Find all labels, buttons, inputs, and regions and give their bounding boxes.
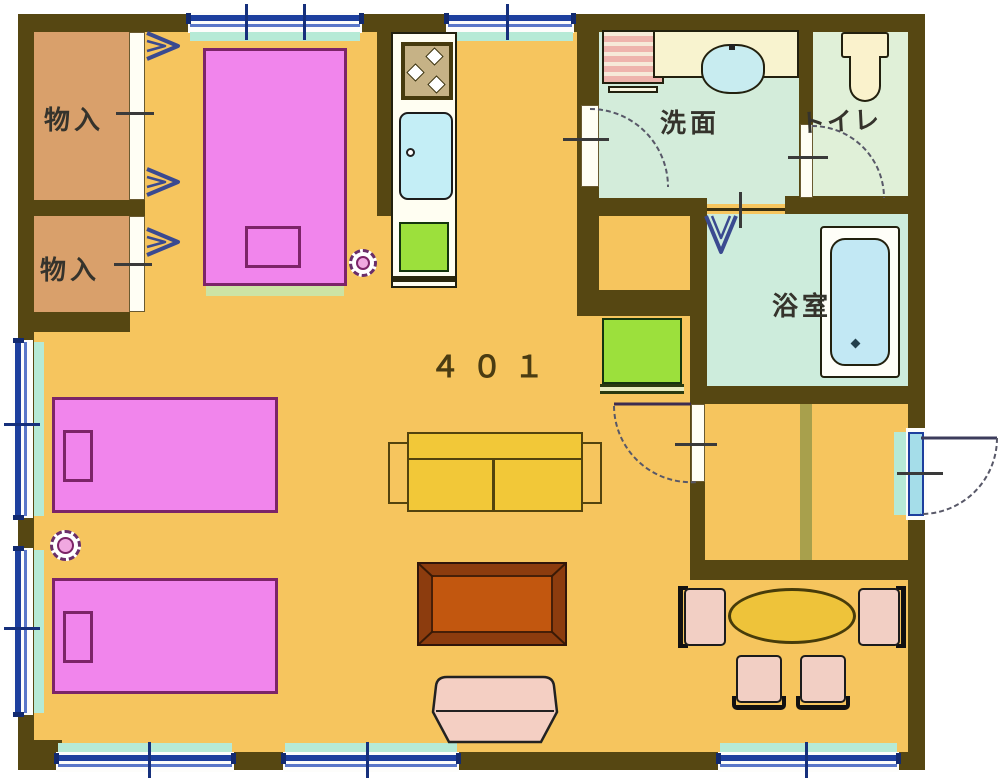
window-cap xyxy=(444,13,449,24)
window-cap xyxy=(13,712,24,717)
toilet-bowl xyxy=(849,56,881,102)
window-frame xyxy=(718,755,899,761)
sofa-seat-divider xyxy=(492,460,495,510)
window-frame xyxy=(15,548,21,715)
pillow xyxy=(63,611,93,663)
window-frame xyxy=(24,550,27,713)
window-cap xyxy=(716,753,721,764)
stool-seat xyxy=(356,256,370,270)
towel-shelf-base xyxy=(608,86,658,93)
wall-bath-toilet xyxy=(785,196,908,214)
window xyxy=(283,752,459,772)
dining-chair-back xyxy=(796,696,850,710)
genkan-step-edge xyxy=(800,404,812,560)
window-glass xyxy=(34,550,44,713)
window-tick xyxy=(4,423,40,426)
door-tick xyxy=(739,192,742,228)
window-frame xyxy=(283,755,459,761)
window-cap xyxy=(571,13,576,24)
kitchen-counter-end xyxy=(393,276,455,282)
window xyxy=(56,752,234,772)
window-frame xyxy=(15,340,21,518)
window-tick xyxy=(303,4,306,40)
door-tick xyxy=(788,156,828,159)
wall-below-storage xyxy=(18,312,130,332)
window xyxy=(12,340,33,518)
door-tick xyxy=(114,263,152,266)
wall-storage-door-post xyxy=(129,14,145,32)
window-frame xyxy=(188,15,362,21)
vanity-basin xyxy=(701,44,765,94)
sofa-armrest xyxy=(388,442,409,504)
wall-hall-top xyxy=(690,386,908,404)
window xyxy=(12,548,33,715)
window-cap xyxy=(13,546,24,551)
stool-seat xyxy=(57,537,74,554)
window-tick xyxy=(245,4,248,40)
wall-bathroom-left xyxy=(690,214,707,388)
dining-chair xyxy=(858,588,900,646)
room-label-storage-2: 物入 xyxy=(40,250,100,287)
pillow xyxy=(63,430,93,482)
room-label-toilet: トイレ xyxy=(799,100,882,140)
sofa-seat xyxy=(407,458,583,512)
faucet-icon xyxy=(729,44,735,50)
wall-mid-horizontal xyxy=(577,290,695,316)
bathtub xyxy=(830,238,890,366)
window-glass xyxy=(720,743,897,752)
floor-plan: 物入 物入 洗面 トイレ 浴室 ４０１ xyxy=(0,0,1000,782)
pillow xyxy=(245,226,301,268)
washroom-door-leaf xyxy=(581,105,599,187)
window-glass xyxy=(190,32,360,41)
washing-machine-space xyxy=(602,318,682,384)
stool xyxy=(50,530,81,561)
storage-sliding-door-panel xyxy=(129,32,145,200)
window-glass xyxy=(34,342,44,516)
door-tick xyxy=(897,472,943,475)
bed-skirt xyxy=(206,286,344,296)
window-glass xyxy=(58,743,232,752)
window-cap xyxy=(186,13,191,24)
window-cap xyxy=(231,753,236,764)
window-cap xyxy=(456,753,461,764)
stool xyxy=(349,249,377,277)
window-glass xyxy=(448,32,573,41)
toilet-tank xyxy=(841,32,889,58)
window-cap xyxy=(13,338,24,343)
window-tick xyxy=(366,742,369,778)
window-cap xyxy=(896,753,901,764)
unit-number-label: ４０１ xyxy=(430,342,556,386)
window xyxy=(446,12,574,33)
window-tick xyxy=(506,4,509,40)
bathroom-partition-line xyxy=(707,208,785,211)
window-tick xyxy=(148,742,151,778)
window-frame xyxy=(190,24,360,27)
wall-storage-door-post xyxy=(129,200,145,216)
window-cap xyxy=(281,753,286,764)
dining-table xyxy=(728,588,856,644)
window-frame xyxy=(446,15,574,21)
room-label-washroom: 洗面 xyxy=(660,103,720,140)
window-frame xyxy=(24,342,27,516)
window-tick xyxy=(805,742,808,778)
dining-chair xyxy=(684,588,726,646)
window-frame xyxy=(56,755,234,761)
door-tick xyxy=(675,443,717,446)
coffee-table-top xyxy=(431,575,553,633)
sofa-back xyxy=(407,432,583,460)
exterior-wall-right xyxy=(908,14,925,770)
window-cap xyxy=(54,753,59,764)
wall-hall-bottom xyxy=(690,560,908,580)
door-arc xyxy=(920,438,997,514)
sofa-armrest xyxy=(581,442,602,504)
window-frame xyxy=(58,764,232,767)
window-glass xyxy=(285,743,457,752)
wall-storage-divider xyxy=(34,200,130,216)
door-tick xyxy=(563,138,609,141)
door-tick xyxy=(116,112,154,115)
refrigerator xyxy=(399,222,449,272)
washing-machine-pan-edge xyxy=(600,384,684,394)
dining-chair-back xyxy=(732,696,786,710)
room-label-bathroom: 浴室 xyxy=(772,286,832,323)
room-label-storage-1: 物入 xyxy=(44,100,104,137)
window-frame xyxy=(448,24,572,27)
window xyxy=(188,12,362,33)
sink-drain xyxy=(406,148,415,157)
window-frame xyxy=(720,764,897,767)
window xyxy=(718,752,899,772)
window-frame xyxy=(285,764,457,767)
window-cap xyxy=(13,515,24,520)
window-tick xyxy=(4,627,40,630)
window-cap xyxy=(359,13,364,24)
